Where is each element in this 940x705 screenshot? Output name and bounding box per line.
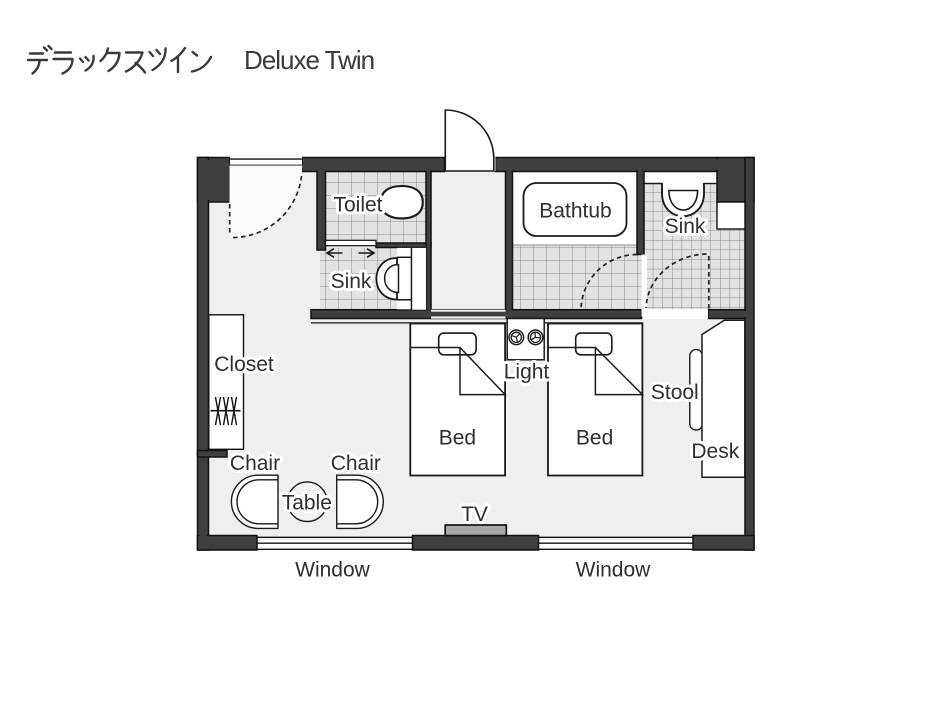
svg-text:Bed: Bed bbox=[439, 427, 476, 450]
svg-text:Sink: Sink bbox=[665, 215, 706, 238]
svg-text:Bed: Bed bbox=[576, 427, 613, 450]
svg-text:TV: TV bbox=[461, 503, 488, 526]
svg-text:Closet: Closet bbox=[214, 353, 274, 376]
svg-text:Window: Window bbox=[295, 558, 371, 581]
svg-text:Toilet: Toilet bbox=[333, 194, 382, 217]
svg-text:Sink: Sink bbox=[331, 270, 372, 293]
svg-text:Light: Light bbox=[504, 361, 550, 384]
svg-text:Bathtub: Bathtub bbox=[539, 200, 611, 223]
svg-text:Chair: Chair bbox=[331, 452, 381, 475]
svg-text:Chair: Chair bbox=[230, 452, 280, 475]
svg-text:Desk: Desk bbox=[691, 440, 739, 463]
svg-text:Deluxe Twin: Deluxe Twin bbox=[244, 45, 374, 75]
svg-text:Stool: Stool bbox=[651, 381, 699, 404]
svg-text:Window: Window bbox=[576, 558, 652, 581]
svg-text:Table: Table bbox=[282, 492, 332, 515]
